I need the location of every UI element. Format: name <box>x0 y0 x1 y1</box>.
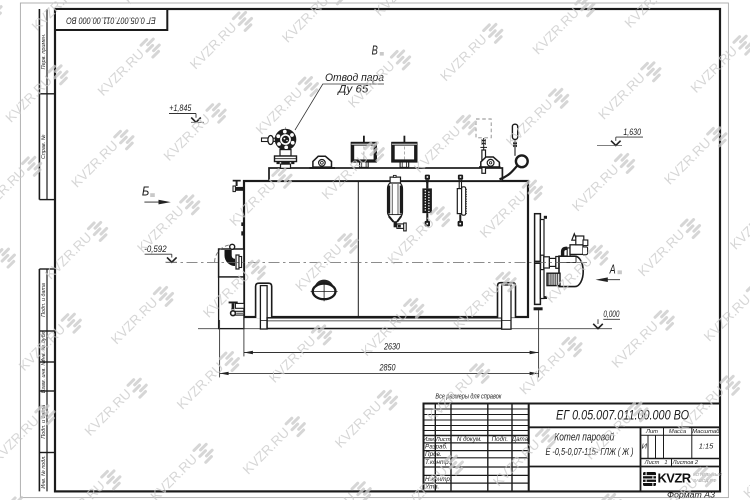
svg-text:Разраб.: Разраб. <box>425 443 448 451</box>
svg-text:И: И <box>642 441 648 450</box>
svg-text:Пров.: Пров. <box>425 451 442 458</box>
svg-text:N докум.: N докум. <box>457 436 482 443</box>
svg-text:Лист: Лист <box>644 460 660 466</box>
svg-text:Взам. инв. №: Взам. инв. № <box>41 360 47 394</box>
svg-text:2850: 2850 <box>379 363 396 373</box>
svg-text:Лист: Лист <box>435 437 451 443</box>
svg-text:Б: Б <box>142 184 150 199</box>
svg-text:0,000: 0,000 <box>603 309 620 319</box>
svg-text:2630: 2630 <box>383 342 400 352</box>
svg-text:Перв. примен.: Перв. примен. <box>41 33 47 69</box>
svg-text:Масштаб: Масштаб <box>692 429 720 435</box>
svg-text:1,630: 1,630 <box>623 127 641 137</box>
svg-text:Изм.: Изм. <box>423 437 435 443</box>
svg-text:Справ. №: Справ. № <box>41 134 47 159</box>
svg-text:ЕГ 0.05.007.011.00.000 ВО: ЕГ 0.05.007.011.00.000 ВО <box>66 14 156 25</box>
svg-text:1:15: 1:15 <box>699 441 714 450</box>
svg-text:В: В <box>372 42 378 57</box>
svg-text:Лит: Лит <box>645 429 658 435</box>
svg-text:Подп. и дата: Подп. и дата <box>41 283 47 317</box>
svg-text:+1,845: +1,845 <box>169 103 192 113</box>
svg-text:Листов: Листов <box>672 460 694 466</box>
svg-text:1: 1 <box>664 460 667 466</box>
svg-text:Инв. № подл.: Инв. № подл. <box>41 455 47 488</box>
svg-text:А: А <box>609 261 616 276</box>
svg-text:Подп.: Подп. <box>492 436 508 443</box>
